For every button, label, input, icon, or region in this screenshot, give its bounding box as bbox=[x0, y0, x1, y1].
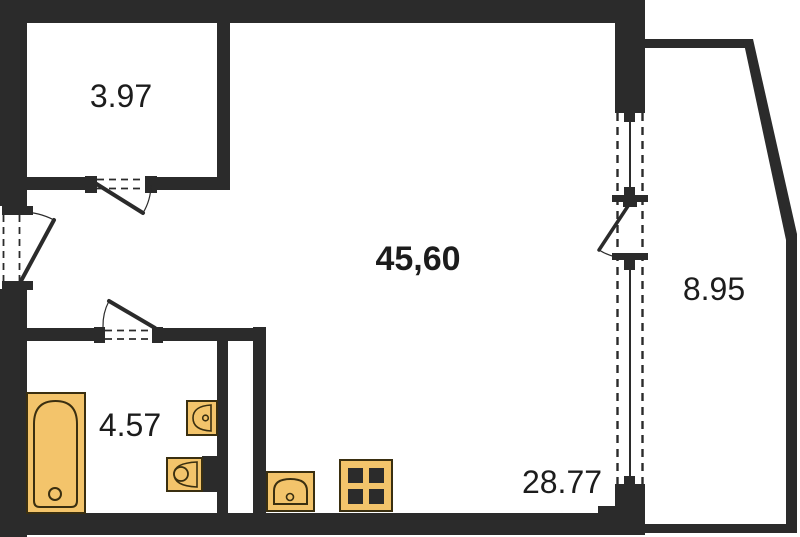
bathroom-door-swing-arc bbox=[103, 301, 109, 327]
bathroom-top-wall-right bbox=[163, 328, 266, 341]
bathroom-door-jamb-left bbox=[94, 327, 105, 343]
window-casement-leaf bbox=[599, 206, 628, 250]
closet-bottom-wall-right bbox=[157, 177, 230, 190]
left-wall-upper bbox=[0, 0, 27, 206]
top-wall bbox=[0, 0, 645, 23]
stove-burner-top-right bbox=[369, 468, 384, 483]
window-post-top bbox=[615, 23, 645, 113]
closet-door bbox=[85, 176, 157, 213]
stove-burner-bottom-right bbox=[369, 489, 384, 504]
washbasin bbox=[187, 401, 217, 435]
bathroom-door bbox=[94, 301, 163, 343]
window-transom-upper bbox=[612, 195, 648, 202]
kitchen-sink bbox=[267, 472, 314, 511]
closet-right-wall bbox=[217, 23, 230, 190]
bottom-wall bbox=[0, 513, 645, 535]
closet-bottom-wall-left bbox=[27, 177, 85, 190]
balcony-bottom-wall bbox=[645, 524, 797, 533]
closet-area-label: 3.97 bbox=[90, 78, 152, 114]
bathroom-area-label: 4.57 bbox=[99, 407, 161, 443]
floor-plan-drawing: 3.97 45,60 8.95 4.57 28.77 bbox=[0, 0, 800, 537]
balcony-area-label: 8.95 bbox=[683, 271, 745, 307]
left-wall-lower bbox=[0, 289, 27, 537]
stove-burner-bottom-left bbox=[348, 489, 363, 504]
entrance-jamb-top bbox=[2, 206, 33, 215]
kitchen-area-label: 28.77 bbox=[522, 464, 602, 500]
kitchen-sink-drain bbox=[287, 494, 294, 501]
window-node-bottom bbox=[624, 476, 635, 485]
entrance-door bbox=[2, 206, 54, 290]
entrance-door-leaf bbox=[21, 220, 54, 281]
window-node-mid-lower bbox=[624, 260, 635, 270]
balcony-top-wall bbox=[645, 39, 751, 48]
window-post-bottom bbox=[615, 484, 645, 533]
stove-burner-top-left bbox=[348, 468, 363, 483]
balcony-window bbox=[599, 112, 648, 487]
stove-outline bbox=[340, 460, 392, 511]
stove bbox=[340, 460, 392, 511]
bathtub-drain bbox=[49, 488, 61, 500]
balcony-diagonal-wall bbox=[743, 39, 797, 240]
bathroom-door-leaf bbox=[109, 301, 155, 328]
closet-door-leaf bbox=[95, 183, 143, 213]
floor-plan: 3.97 45,60 8.95 4.57 28.77 bbox=[0, 0, 800, 537]
bottom-wall-step bbox=[598, 506, 615, 514]
bathtub bbox=[27, 393, 85, 513]
toilet-cistern bbox=[202, 456, 218, 492]
washbasin-tap bbox=[203, 415, 209, 421]
duct-right-wall bbox=[253, 327, 266, 513]
window-node-top bbox=[624, 112, 635, 122]
studio-area-label: 45,60 bbox=[375, 240, 460, 278]
entrance-jamb-bottom bbox=[2, 281, 33, 290]
toilet bbox=[167, 456, 218, 492]
window-hinge-tab bbox=[623, 202, 637, 207]
balcony-right-wall bbox=[786, 234, 797, 532]
bathroom-right-wall bbox=[217, 341, 228, 513]
toilet-bowl-center bbox=[174, 467, 188, 481]
window-transom-lower bbox=[612, 253, 648, 260]
bathroom-top-wall-left bbox=[27, 328, 94, 341]
